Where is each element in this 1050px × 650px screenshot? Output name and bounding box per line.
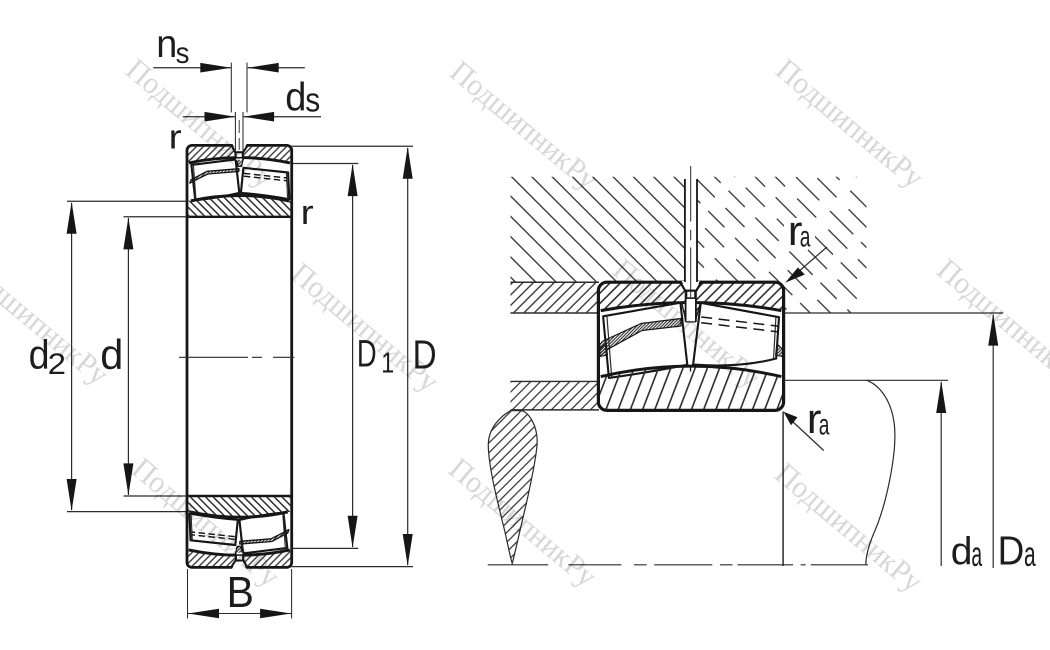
svg-text:d: d [285, 75, 306, 119]
svg-text:a: a [1024, 536, 1036, 575]
svg-text:s: s [305, 81, 320, 119]
svg-text:r: r [301, 193, 314, 231]
svg-text:n: n [156, 22, 177, 66]
svg-text:a: a [819, 408, 830, 441]
svg-text:s: s [176, 37, 190, 70]
svg-text:a: a [971, 534, 982, 574]
svg-text:D: D [998, 529, 1025, 574]
svg-text:a: a [800, 220, 811, 253]
svg-text:d: d [951, 531, 973, 574]
